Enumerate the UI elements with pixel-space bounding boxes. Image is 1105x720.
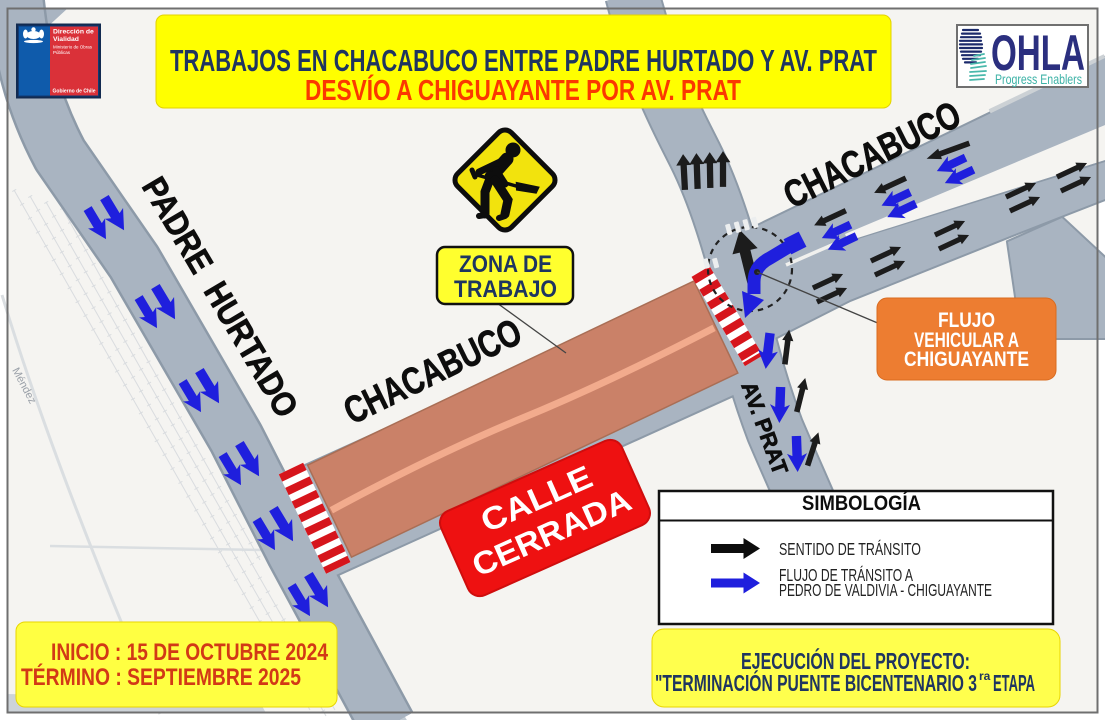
- svg-text:Progress Enablers: Progress Enablers: [995, 71, 1082, 87]
- svg-text:Vialidad: Vialidad: [53, 36, 79, 43]
- svg-text:ETAPA: ETAPA: [993, 670, 1035, 696]
- svg-text:Dirección de: Dirección de: [53, 29, 94, 36]
- svg-text:DESVÍO A CHIGUAYANTE POR AV. P: DESVÍO A CHIGUAYANTE POR AV. PRAT: [305, 73, 741, 107]
- svg-text:Públicas: Públicas: [53, 50, 71, 55]
- svg-text:INICIO : 15 DE OCTUBRE 2024: INICIO : 15 DE OCTUBRE 2024: [51, 639, 329, 666]
- svg-text:Gobierno de Chile: Gobierno de Chile: [53, 89, 96, 95]
- svg-text:PEDRO DE VALDIVIA - CHIGUAYANT: PEDRO DE VALDIVIA - CHIGUAYANTE: [779, 580, 992, 600]
- svg-text:SENTIDO DE TRÁNSITO: SENTIDO DE TRÁNSITO: [779, 539, 921, 559]
- svg-text:ZONA DE: ZONA DE: [459, 251, 552, 278]
- svg-text:"TERMINACIÓN PUENTE BICENTENAR: "TERMINACIÓN PUENTE BICENTENARIO 3: [655, 669, 977, 696]
- svg-text:Ministerio de Obras: Ministerio de Obras: [53, 45, 93, 50]
- svg-text:SIMBOLOGÍA: SIMBOLOGÍA: [802, 490, 921, 515]
- svg-text:TRABAJOS EN CHACABUCO ENTRE PA: TRABAJOS EN CHACABUCO ENTRE PADRE HURTAD…: [170, 43, 877, 78]
- svg-text:TRABAJO: TRABAJO: [454, 276, 557, 303]
- svg-text:ra: ra: [979, 669, 991, 683]
- svg-text:CHIGUAYANTE: CHIGUAYANTE: [904, 348, 1029, 371]
- svg-text:TÉRMINO : SEPTIEMBRE 2025: TÉRMINO : SEPTIEMBRE 2025: [21, 663, 301, 691]
